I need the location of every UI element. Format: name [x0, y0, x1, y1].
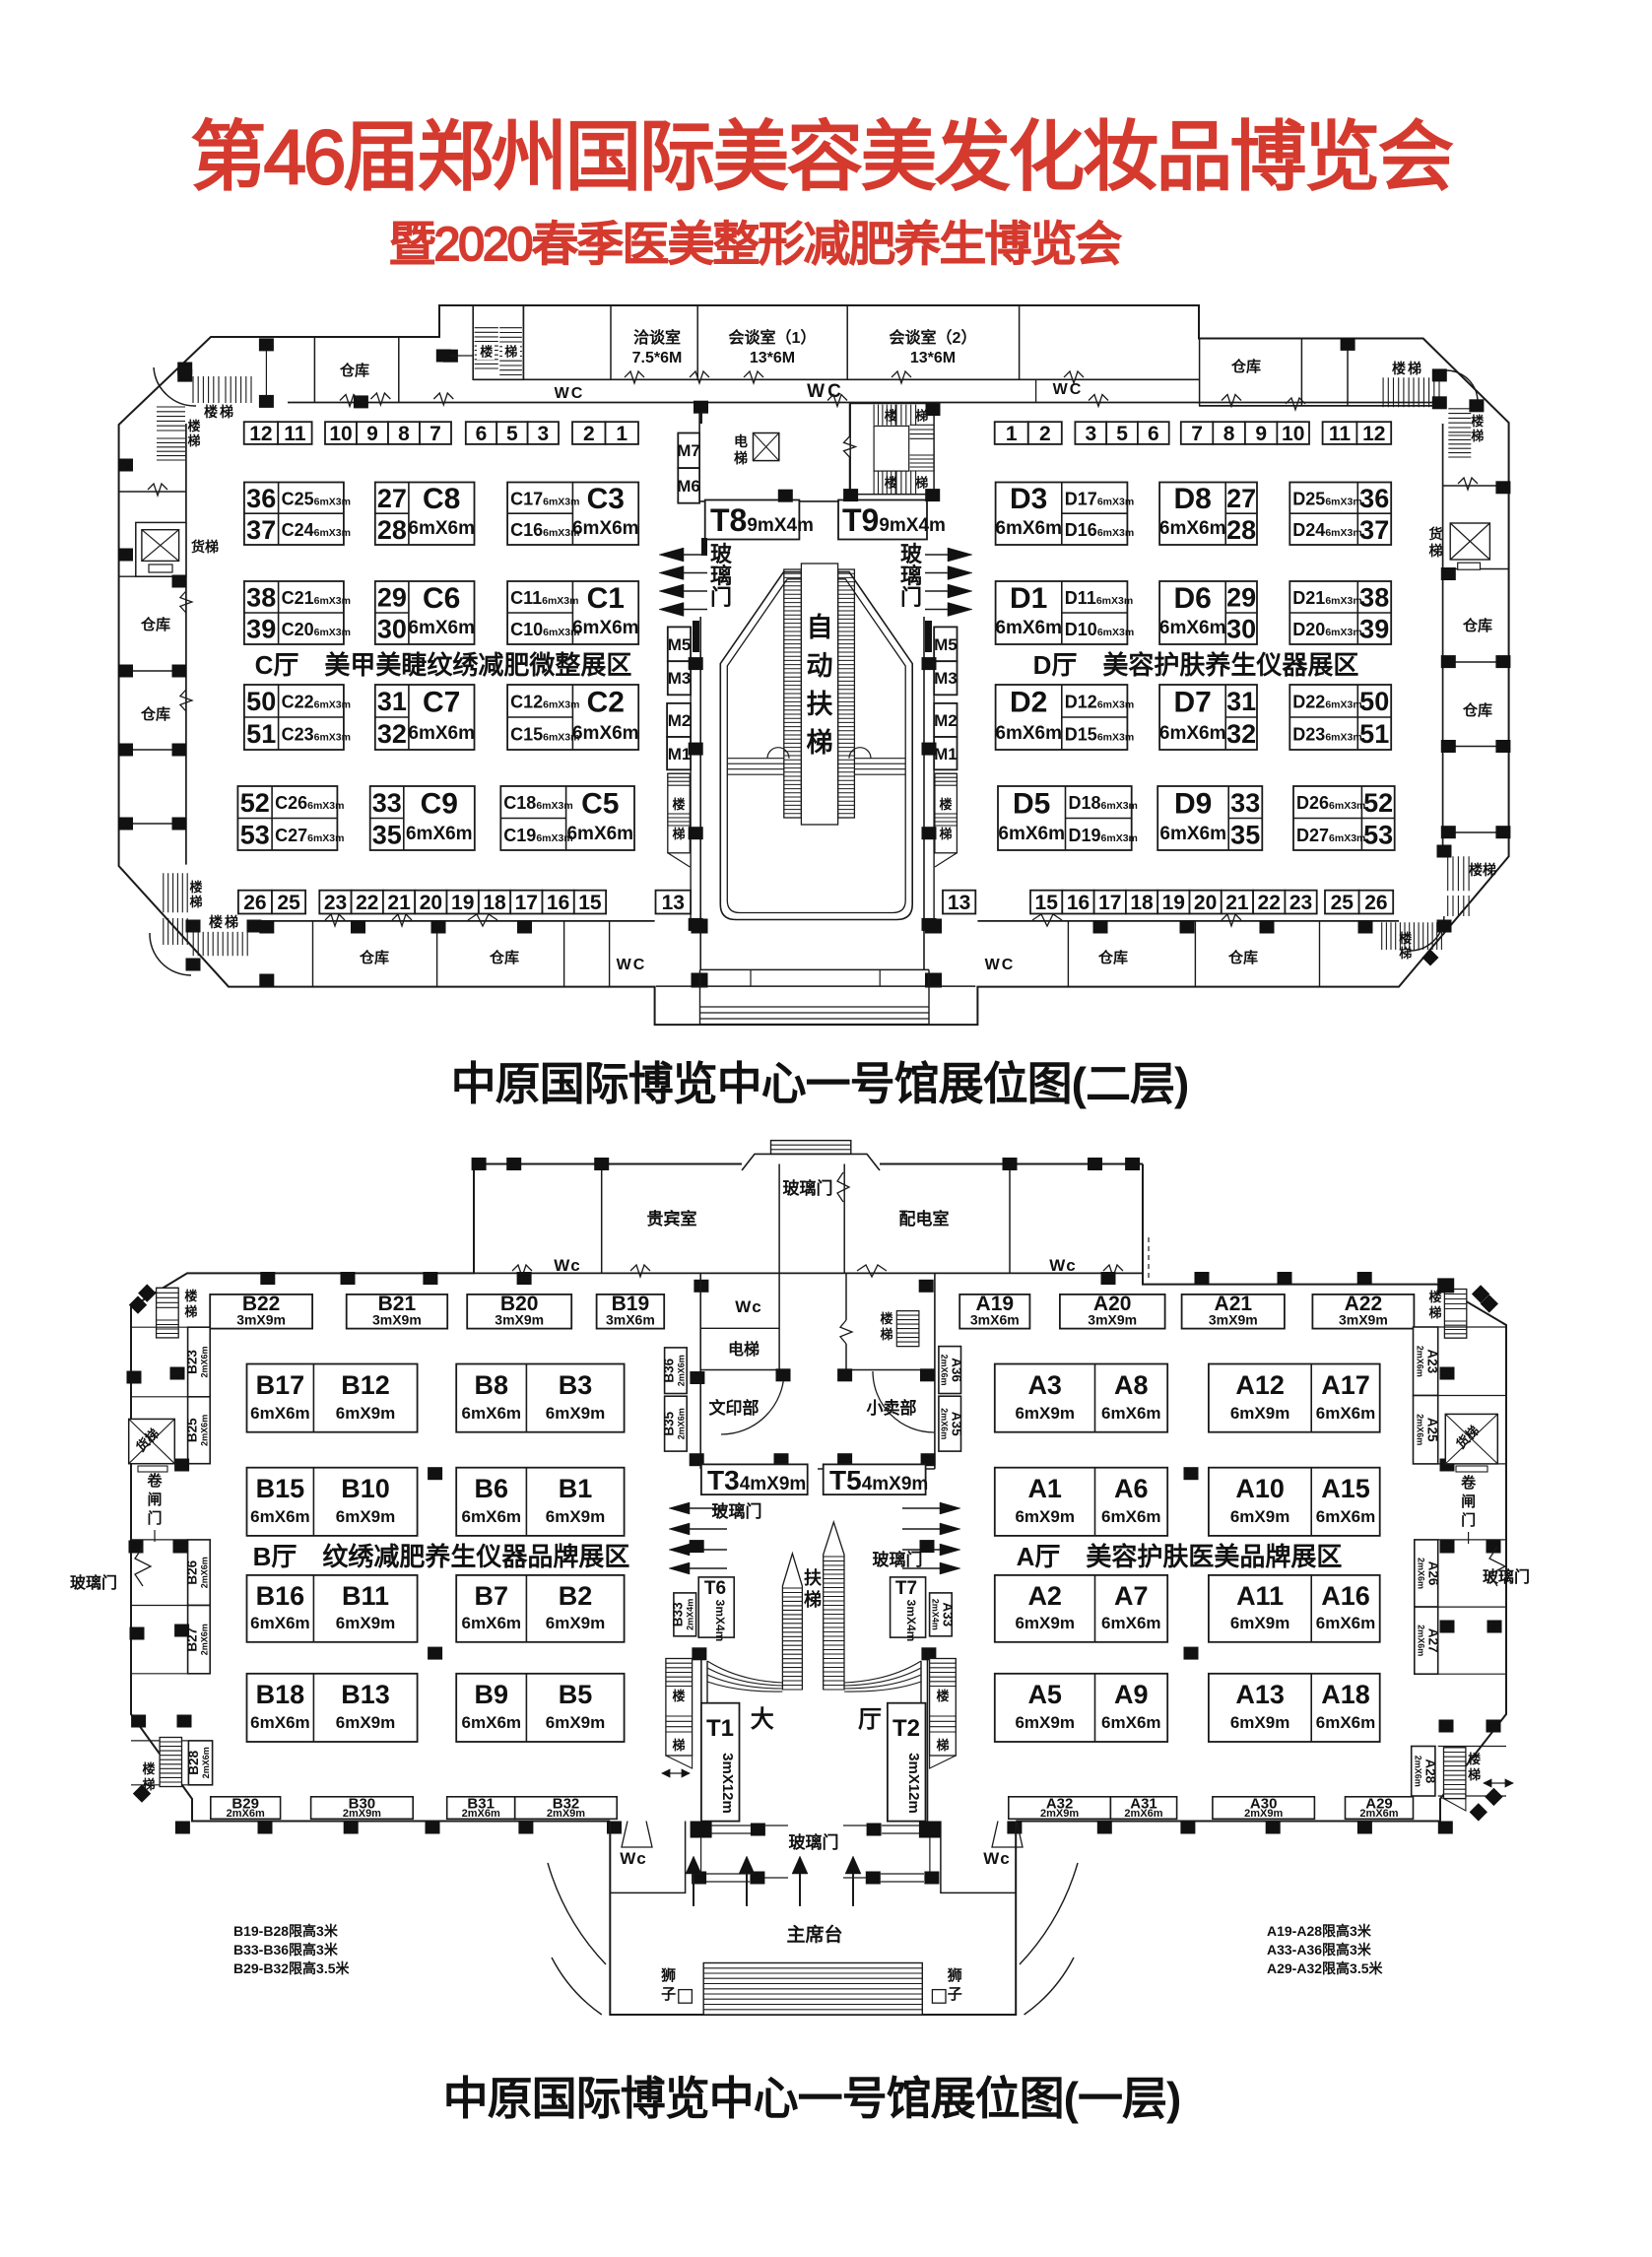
- svg-text:C6: C6: [423, 582, 460, 615]
- svg-text:6mX6m: 6mX6m: [250, 1713, 309, 1732]
- svg-text:楼: 楼: [1399, 931, 1412, 946]
- svg-text:WC: WC: [617, 957, 647, 973]
- svg-text:2mX6m: 2mX6m: [1416, 1625, 1425, 1656]
- svg-text:M1: M1: [934, 745, 958, 763]
- svg-text:35: 35: [1230, 821, 1260, 850]
- svg-text:7: 7: [430, 423, 441, 445]
- svg-text:2mX6m: 2mX6m: [1413, 1756, 1422, 1787]
- svg-text:6mX6m: 6mX6m: [1101, 1507, 1160, 1526]
- svg-text:19: 19: [1162, 892, 1185, 914]
- svg-text:16: 16: [1067, 892, 1090, 914]
- svg-text:3mX9m: 3mX9m: [372, 1312, 422, 1328]
- svg-text:39: 39: [1359, 615, 1389, 644]
- svg-text:B23: B23: [184, 1350, 199, 1374]
- svg-text:A16: A16: [1321, 1581, 1370, 1611]
- svg-text:2mX6m: 2mX6m: [676, 1408, 686, 1439]
- svg-text:A8: A8: [1114, 1370, 1149, 1400]
- svg-text:楼: 楼: [184, 1289, 197, 1303]
- svg-text:2mX6m: 2mX6m: [199, 1624, 209, 1655]
- svg-text:2mX6m: 2mX6m: [676, 1355, 686, 1386]
- svg-text:6mX6m: 6mX6m: [1159, 518, 1226, 539]
- svg-text:自: 自: [807, 612, 833, 642]
- svg-text:梯: 梯: [189, 895, 202, 909]
- svg-text:5: 5: [506, 423, 518, 445]
- svg-text:闸: 闸: [147, 1491, 162, 1508]
- svg-text:3mX4m: 3mX4m: [713, 1600, 727, 1642]
- svg-text:仓库: 仓库: [489, 949, 519, 966]
- svg-text:6mX6m: 6mX6m: [1159, 723, 1226, 744]
- svg-text:门: 门: [147, 1509, 162, 1527]
- svg-text:2mX9m: 2mX9m: [343, 1808, 381, 1820]
- svg-text:6mX6m: 6mX6m: [1159, 618, 1226, 638]
- svg-text:B13: B13: [341, 1680, 390, 1709]
- svg-text:6mX6m: 6mX6m: [1316, 1507, 1375, 1526]
- svg-text:6mX6m: 6mX6m: [462, 1404, 521, 1423]
- svg-text:2mX6m: 2mX6m: [462, 1808, 500, 1820]
- svg-text:B26: B26: [184, 1560, 199, 1584]
- svg-text:M5: M5: [934, 635, 958, 654]
- svg-text:M5: M5: [668, 635, 692, 654]
- svg-text:A19-A28限高3米: A19-A28限高3米: [1267, 1923, 1372, 1939]
- svg-text:玻璃门: 玻璃门: [789, 1832, 839, 1852]
- svg-text:52: 52: [240, 788, 270, 818]
- svg-text:梯: 梯: [672, 827, 685, 841]
- svg-text:货梯: 货梯: [190, 539, 219, 555]
- svg-text:2mX9m: 2mX9m: [1244, 1808, 1283, 1820]
- svg-text:6mX6m: 6mX6m: [250, 1507, 309, 1526]
- svg-text:6mX6m: 6mX6m: [462, 1713, 521, 1732]
- svg-text:Wc: Wc: [735, 1297, 762, 1316]
- svg-text:3mX9m: 3mX9m: [236, 1312, 286, 1328]
- svg-text:楼梯: 楼梯: [1469, 862, 1496, 878]
- svg-text:26: 26: [1364, 892, 1387, 914]
- svg-text:门: 门: [1461, 1511, 1476, 1529]
- svg-text:A7: A7: [1114, 1581, 1149, 1611]
- svg-text:32: 32: [377, 719, 407, 749]
- svg-text:6mX6m: 6mX6m: [250, 1404, 309, 1423]
- svg-text:6mX9m: 6mX9m: [336, 1507, 395, 1526]
- svg-text:玻璃门: 玻璃门: [783, 1178, 833, 1198]
- svg-text:M2: M2: [934, 711, 958, 730]
- svg-text:A27: A27: [1425, 1628, 1440, 1653]
- svg-text:大: 大: [751, 1706, 774, 1733]
- svg-text:6mX6m: 6mX6m: [1101, 1404, 1160, 1423]
- svg-text:10: 10: [329, 423, 352, 445]
- svg-text:楼: 楼: [939, 797, 952, 812]
- svg-text:6mX6m: 6mX6m: [408, 723, 475, 744]
- svg-text:11: 11: [1329, 423, 1352, 445]
- svg-text:2mX6m: 2mX6m: [1124, 1808, 1162, 1820]
- svg-text:卷: 卷: [146, 1472, 163, 1490]
- svg-text:WC: WC: [555, 385, 585, 402]
- svg-text:2mX6m: 2mX6m: [199, 1557, 209, 1588]
- svg-text:51: 51: [1359, 719, 1389, 749]
- svg-text:楼: 楼: [672, 1689, 685, 1703]
- svg-text:13: 13: [948, 892, 970, 914]
- svg-text:Wc: Wc: [1049, 1256, 1077, 1275]
- svg-text:6mX6m: 6mX6m: [572, 723, 639, 744]
- svg-text:仓库: 仓库: [140, 705, 170, 723]
- svg-text:A33-A36限高3米: A33-A36限高3米: [1267, 1942, 1372, 1958]
- svg-text:电梯: 电梯: [728, 1340, 760, 1359]
- svg-text:梯: 梯: [804, 1589, 822, 1610]
- svg-text:子: 子: [948, 1986, 962, 2003]
- svg-text:楼: 楼: [1468, 1752, 1481, 1766]
- svg-text:C厅 美甲美睫纹绣减肥微整展区: C厅 美甲美睫纹绣减肥微整展区: [255, 650, 632, 680]
- svg-text:D8: D8: [1174, 483, 1212, 515]
- svg-text:梯: 梯: [1429, 543, 1443, 559]
- svg-text:A18: A18: [1321, 1680, 1370, 1709]
- svg-text:33: 33: [372, 788, 402, 818]
- svg-text:B19-B28限高3米: B19-B28限高3米: [233, 1923, 339, 1939]
- svg-text:22: 22: [356, 892, 378, 914]
- svg-text:13*6M: 13*6M: [750, 350, 795, 366]
- svg-text:6mX9m: 6mX9m: [1230, 1713, 1289, 1732]
- svg-text:19: 19: [451, 892, 474, 914]
- svg-text:M3: M3: [934, 669, 958, 688]
- svg-text:A35: A35: [950, 1412, 964, 1436]
- svg-text:B12: B12: [341, 1370, 390, 1400]
- svg-text:梯: 梯: [880, 1327, 892, 1342]
- svg-text:39: 39: [246, 615, 276, 644]
- svg-text:25: 25: [1331, 892, 1355, 914]
- svg-text:10: 10: [1282, 423, 1304, 445]
- svg-text:7.5*6M: 7.5*6M: [632, 350, 683, 366]
- svg-text:6mX6m: 6mX6m: [998, 824, 1065, 844]
- svg-text:C1: C1: [587, 582, 625, 615]
- svg-text:6mX9m: 6mX9m: [336, 1614, 395, 1632]
- svg-text:A17: A17: [1321, 1370, 1370, 1400]
- svg-text:3mX12m: 3mX12m: [719, 1753, 736, 1814]
- svg-text:6mX9m: 6mX9m: [1230, 1614, 1289, 1632]
- svg-text:6mX9m: 6mX9m: [1015, 1404, 1074, 1423]
- svg-text:A厅 美容护肤医美品牌展区: A厅 美容护肤医美品牌展区: [1017, 1542, 1343, 1571]
- svg-text:53: 53: [1363, 821, 1393, 850]
- svg-text:32: 32: [1226, 719, 1256, 749]
- svg-text:A2: A2: [1027, 1581, 1062, 1611]
- svg-text:D1: D1: [1010, 582, 1047, 615]
- svg-text:38: 38: [1359, 583, 1389, 613]
- svg-text:13: 13: [662, 892, 685, 914]
- svg-text:狮: 狮: [947, 1966, 962, 1984]
- svg-text:6mX6m: 6mX6m: [250, 1614, 309, 1632]
- svg-text:楼: 楼: [885, 476, 897, 491]
- svg-text:子: 子: [661, 1986, 676, 2003]
- svg-text:A23: A23: [1425, 1349, 1440, 1373]
- svg-text:6mX6m: 6mX6m: [995, 518, 1062, 539]
- svg-text:30: 30: [1226, 615, 1256, 644]
- svg-text:B28: B28: [186, 1750, 201, 1774]
- svg-text:B6: B6: [475, 1474, 509, 1503]
- svg-text:梯: 梯: [936, 1738, 949, 1753]
- svg-text:Wc: Wc: [554, 1256, 581, 1275]
- svg-text:25: 25: [277, 892, 300, 914]
- svg-text:门: 门: [710, 585, 732, 610]
- svg-text:Wc: Wc: [620, 1849, 647, 1868]
- svg-text:3mX9m: 3mX9m: [1088, 1312, 1137, 1328]
- svg-text:2mX6m: 2mX6m: [199, 1346, 209, 1377]
- svg-text:中原国际博览中心一号馆展位图(二层): 中原国际博览中心一号馆展位图(二层): [451, 1058, 1189, 1109]
- svg-text:6mX6m: 6mX6m: [408, 618, 475, 638]
- svg-text:T7: T7: [895, 1578, 917, 1599]
- svg-text:6mX6m: 6mX6m: [572, 618, 639, 638]
- svg-text:楼: 楼: [936, 1689, 949, 1703]
- svg-text:玻璃门: 玻璃门: [70, 1573, 117, 1592]
- svg-text:2mX9m: 2mX9m: [547, 1808, 585, 1820]
- svg-text:B2: B2: [559, 1581, 593, 1611]
- svg-text:6mX9m: 6mX9m: [1015, 1507, 1074, 1526]
- svg-text:11: 11: [284, 423, 306, 445]
- svg-text:玻璃门: 玻璃门: [712, 1501, 762, 1521]
- svg-text:C5: C5: [581, 787, 619, 820]
- svg-text:梯: 梯: [915, 476, 928, 491]
- svg-text:M3: M3: [668, 669, 692, 688]
- svg-text:主席台: 主席台: [786, 1923, 842, 1946]
- svg-text:A3: A3: [1027, 1370, 1062, 1400]
- svg-text:电: 电: [734, 433, 748, 449]
- svg-text:B16: B16: [256, 1581, 305, 1611]
- svg-text:M6: M6: [677, 477, 700, 496]
- svg-text:2mX4m: 2mX4m: [930, 1599, 940, 1630]
- svg-text:仓库: 仓库: [359, 949, 389, 966]
- svg-text:6mX9m: 6mX9m: [546, 1713, 605, 1732]
- svg-text:T2: T2: [892, 1715, 920, 1742]
- svg-text:仓库: 仓库: [1462, 617, 1492, 634]
- svg-text:仓库: 仓库: [339, 362, 369, 379]
- svg-text:6mX6m: 6mX6m: [995, 723, 1062, 744]
- svg-text:6mX9m: 6mX9m: [546, 1614, 605, 1632]
- svg-text:玻璃门: 玻璃门: [1483, 1567, 1530, 1586]
- svg-text:洽谈室: 洽谈室: [633, 328, 681, 347]
- svg-text:楼: 楼: [885, 409, 897, 424]
- svg-text:6mX6m: 6mX6m: [462, 1507, 521, 1526]
- svg-text:6mX9m: 6mX9m: [1015, 1614, 1074, 1632]
- svg-text:B15: B15: [256, 1474, 305, 1503]
- svg-text:B11: B11: [342, 1581, 389, 1611]
- svg-text:20: 20: [420, 892, 442, 914]
- svg-text:16: 16: [547, 892, 569, 914]
- svg-text:A6: A6: [1114, 1474, 1149, 1503]
- svg-text:梯: 梯: [1468, 1767, 1481, 1782]
- svg-text:C2: C2: [587, 687, 625, 719]
- svg-text:A1: A1: [1027, 1474, 1062, 1503]
- svg-text:B10: B10: [341, 1474, 390, 1503]
- svg-text:A15: A15: [1321, 1474, 1370, 1503]
- svg-text:6mX9m: 6mX9m: [546, 1507, 605, 1526]
- svg-text:A25: A25: [1425, 1418, 1440, 1442]
- svg-text:T1: T1: [706, 1715, 734, 1742]
- svg-text:6mX9m: 6mX9m: [336, 1713, 395, 1732]
- svg-text:厅: 厅: [858, 1706, 882, 1733]
- svg-text:狮: 狮: [660, 1966, 676, 1984]
- svg-text:6: 6: [1148, 423, 1159, 445]
- svg-text:会谈室（2）: 会谈室（2）: [890, 328, 977, 347]
- svg-text:梯: 梯: [807, 728, 833, 758]
- svg-text:梯: 梯: [187, 433, 200, 448]
- svg-text:Wc: Wc: [983, 1849, 1011, 1868]
- svg-text:37: 37: [1359, 515, 1389, 545]
- svg-text:楼梯: 楼梯: [209, 914, 240, 930]
- svg-text:6mX6m: 6mX6m: [572, 518, 639, 539]
- svg-text:梯: 梯: [939, 827, 952, 841]
- svg-text:50: 50: [1359, 687, 1389, 716]
- svg-text:3mX9m: 3mX9m: [495, 1312, 544, 1328]
- svg-text:贵宾室: 贵宾室: [647, 1209, 697, 1228]
- svg-text:楼梯: 楼梯: [204, 404, 235, 420]
- svg-text:动: 动: [807, 651, 833, 681]
- svg-text:6mX9m: 6mX9m: [1230, 1507, 1289, 1526]
- svg-text:D7: D7: [1174, 687, 1212, 719]
- svg-text:23: 23: [324, 892, 347, 914]
- svg-text:扶: 扶: [804, 1567, 823, 1588]
- svg-text:仓库: 仓库: [140, 616, 170, 633]
- svg-text:12: 12: [249, 423, 272, 445]
- svg-text:B33: B33: [671, 1602, 686, 1626]
- svg-text:C7: C7: [423, 687, 460, 719]
- svg-text:M7: M7: [677, 441, 700, 460]
- svg-text:WC: WC: [1053, 381, 1084, 398]
- svg-text:B1: B1: [559, 1474, 593, 1503]
- svg-text:M2: M2: [668, 711, 692, 730]
- svg-text:B25: B25: [184, 1418, 199, 1442]
- svg-text:A12: A12: [1235, 1370, 1285, 1400]
- svg-text:38: 38: [246, 583, 276, 613]
- svg-text:18: 18: [483, 892, 506, 914]
- svg-text:文印部: 文印部: [709, 1398, 760, 1418]
- svg-text:6mX6m: 6mX6m: [462, 1614, 521, 1632]
- svg-text:5: 5: [1116, 423, 1128, 445]
- svg-text:6mX6m: 6mX6m: [1159, 824, 1226, 844]
- svg-text:A28: A28: [1422, 1759, 1437, 1783]
- svg-text:第46届郑州国际美容美发化妆品博览会: 第46届郑州国际美容美发化妆品博览会: [190, 113, 1453, 200]
- svg-text:A5: A5: [1027, 1680, 1062, 1709]
- svg-text:2mX6m: 2mX6m: [1359, 1808, 1398, 1820]
- svg-text:暨2020春季医美整形减肥养生博览会: 暨2020春季医美整形减肥养生博览会: [389, 219, 1122, 271]
- svg-text:6mX9m: 6mX9m: [336, 1404, 395, 1423]
- svg-text:A11: A11: [1236, 1581, 1284, 1611]
- svg-text:楼梯: 楼梯: [1392, 361, 1423, 376]
- svg-text:2mX6m: 2mX6m: [201, 1747, 211, 1778]
- svg-text:28: 28: [1226, 515, 1256, 545]
- svg-text:闸: 闸: [1461, 1493, 1476, 1510]
- svg-text:A26: A26: [1425, 1561, 1440, 1586]
- svg-text:卷: 卷: [1460, 1474, 1477, 1492]
- svg-text:B18: B18: [256, 1680, 305, 1709]
- svg-text:22: 22: [1258, 892, 1281, 914]
- svg-text:B5: B5: [559, 1680, 593, 1709]
- svg-text:53: 53: [240, 821, 270, 850]
- svg-text:M1: M1: [668, 745, 692, 763]
- svg-text:17: 17: [1098, 892, 1121, 914]
- svg-text:C8: C8: [423, 483, 460, 515]
- svg-text:A10: A10: [1235, 1474, 1285, 1503]
- svg-text:29: 29: [1226, 583, 1256, 613]
- svg-text:6mX9m: 6mX9m: [546, 1404, 605, 1423]
- svg-text:17: 17: [515, 892, 538, 914]
- svg-text:楼: 楼: [189, 880, 202, 895]
- svg-text:A29-A32限高3.5米: A29-A32限高3.5米: [1267, 1960, 1383, 1976]
- svg-text:3mX6m: 3mX6m: [606, 1312, 655, 1328]
- svg-text:B36: B36: [661, 1358, 676, 1382]
- svg-text:1: 1: [616, 423, 628, 445]
- svg-text:51: 51: [246, 719, 276, 749]
- svg-text:扶: 扶: [807, 690, 833, 719]
- svg-text:B35: B35: [661, 1411, 676, 1435]
- svg-text:6mX6m: 6mX6m: [1316, 1404, 1375, 1423]
- svg-text:中原国际博览中心一号馆展位图(一层): 中原国际博览中心一号馆展位图(一层): [443, 2073, 1181, 2124]
- svg-text:C3: C3: [587, 483, 625, 515]
- svg-text:B厅 纹绣减肥养生仪器品牌展区: B厅 纹绣减肥养生仪器品牌展区: [253, 1542, 630, 1571]
- svg-text:2mX6m: 2mX6m: [1416, 1346, 1425, 1377]
- svg-text:仓库: 仓库: [1462, 701, 1492, 719]
- svg-text:3mX9m: 3mX9m: [1209, 1312, 1258, 1328]
- svg-text:6mX9m: 6mX9m: [1015, 1713, 1074, 1732]
- svg-text:2mX9m: 2mX9m: [1040, 1808, 1079, 1820]
- svg-text:梯: 梯: [1399, 946, 1412, 961]
- svg-text:B8: B8: [475, 1370, 509, 1400]
- svg-text:18: 18: [1130, 892, 1154, 914]
- svg-text:D9: D9: [1174, 787, 1212, 820]
- svg-text:B3: B3: [559, 1370, 593, 1400]
- svg-text:2mX4m: 2mX4m: [686, 1599, 695, 1630]
- svg-text:门: 门: [900, 585, 922, 610]
- svg-text:D6: D6: [1174, 582, 1212, 615]
- svg-text:26: 26: [243, 892, 266, 914]
- svg-text:A13: A13: [1235, 1680, 1285, 1709]
- svg-text:仓库: 仓库: [1097, 949, 1128, 966]
- svg-text:梯: 梯: [1428, 1305, 1441, 1320]
- svg-text:15: 15: [578, 892, 602, 914]
- svg-text:D3: D3: [1010, 483, 1047, 515]
- svg-text:50: 50: [246, 687, 276, 716]
- svg-text:2mX6m: 2mX6m: [1416, 1414, 1425, 1445]
- svg-text:T6: T6: [704, 1578, 726, 1599]
- svg-text:31: 31: [377, 687, 407, 716]
- svg-text:37: 37: [246, 515, 276, 545]
- svg-text:33: 33: [1230, 788, 1260, 818]
- svg-text:D5: D5: [1013, 787, 1050, 820]
- svg-text:玻璃门: 玻璃门: [873, 1550, 923, 1569]
- svg-text:35: 35: [372, 821, 402, 850]
- svg-text:27: 27: [1226, 484, 1256, 513]
- svg-text:D2: D2: [1010, 687, 1047, 719]
- svg-text:31: 31: [1226, 687, 1256, 716]
- svg-text:6mX9m: 6mX9m: [1230, 1404, 1289, 1423]
- svg-text:8: 8: [1223, 423, 1235, 445]
- svg-text:6mX6m: 6mX6m: [406, 824, 473, 844]
- svg-text:21: 21: [1225, 892, 1249, 914]
- svg-text:30: 30: [377, 615, 407, 644]
- svg-text:3mX4m: 3mX4m: [904, 1600, 918, 1642]
- svg-text:2mX6m: 2mX6m: [1416, 1558, 1425, 1589]
- svg-text:梯: 梯: [184, 1304, 197, 1319]
- svg-text:楼: 楼: [480, 345, 493, 360]
- svg-text:A33: A33: [940, 1602, 955, 1626]
- svg-text:6: 6: [476, 423, 488, 445]
- svg-text:9: 9: [1255, 423, 1267, 445]
- svg-text:20: 20: [1194, 892, 1217, 914]
- svg-text:会谈室（1）: 会谈室（1）: [729, 328, 817, 347]
- svg-text:2mX6m: 2mX6m: [940, 1408, 950, 1439]
- svg-text:8: 8: [398, 423, 410, 445]
- svg-text:楼: 楼: [187, 419, 200, 433]
- svg-text:B33-B36限高3米: B33-B36限高3米: [233, 1942, 339, 1958]
- svg-text:27: 27: [377, 484, 407, 513]
- svg-text:WC: WC: [807, 381, 844, 402]
- svg-text:2mX6m: 2mX6m: [199, 1415, 209, 1446]
- svg-text:2mX6m: 2mX6m: [227, 1808, 265, 1820]
- svg-text:52: 52: [1363, 788, 1393, 818]
